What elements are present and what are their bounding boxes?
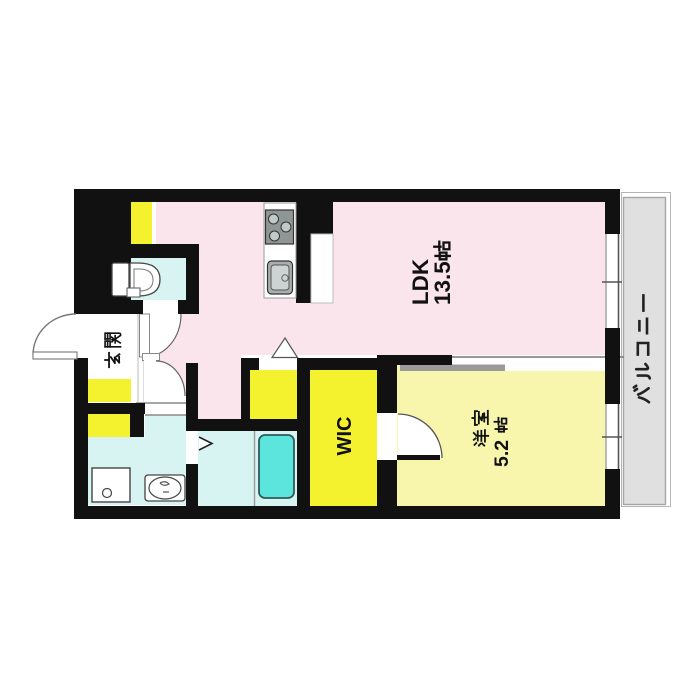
svg-text:13.5: 13.5 [430, 261, 455, 305]
svg-text:5.2: 5.2 [491, 440, 513, 467]
svg-text:WIC: WIC [334, 417, 356, 456]
